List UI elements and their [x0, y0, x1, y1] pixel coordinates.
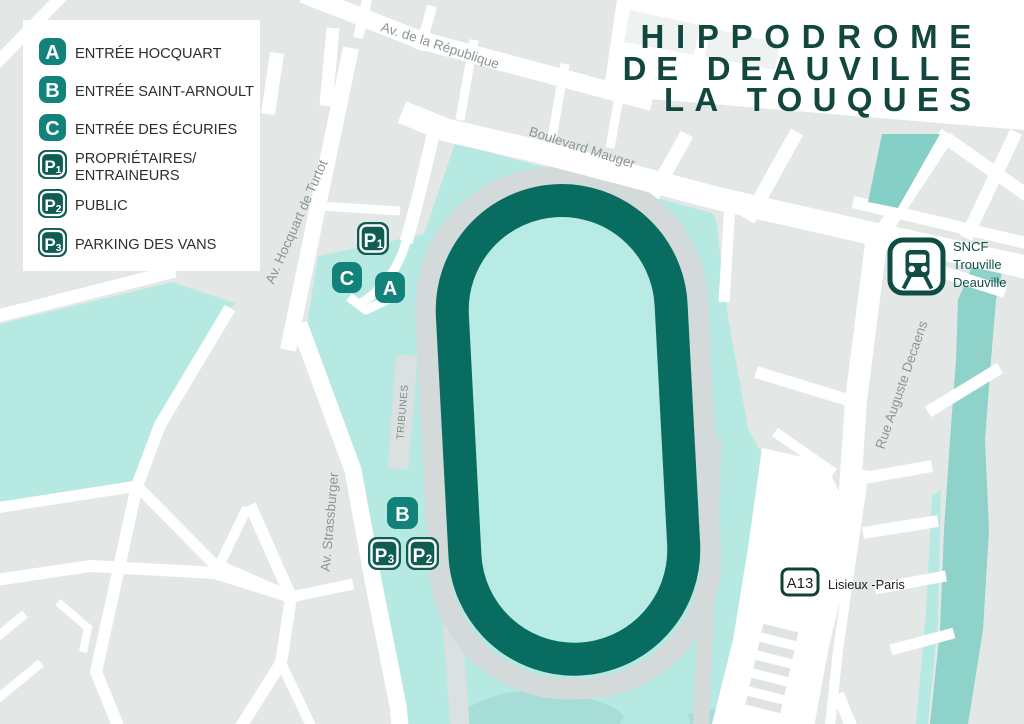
svg-text:1: 1 [377, 239, 384, 251]
svg-text:P: P [44, 157, 55, 176]
svg-text:B: B [45, 80, 59, 102]
svg-text:A13: A13 [787, 575, 814, 592]
svg-text:P: P [364, 231, 377, 252]
svg-text:A: A [45, 42, 59, 64]
svg-text:Trouville: Trouville [953, 257, 1002, 272]
svg-text:C: C [340, 268, 354, 290]
svg-text:ENTRÉE DES ÉCURIES: ENTRÉE DES ÉCURIES [75, 121, 237, 138]
svg-text:ENTRÉE HOCQUART: ENTRÉE HOCQUART [75, 45, 222, 62]
svg-text:PUBLIC: PUBLIC [75, 198, 128, 214]
svg-text:3: 3 [56, 242, 62, 254]
svg-text:B: B [395, 504, 409, 526]
svg-text:Deauville: Deauville [953, 275, 1006, 290]
svg-text:A: A [383, 278, 397, 300]
svg-text:PARKING DES VANS: PARKING DES VANS [75, 237, 217, 253]
svg-text:P: P [44, 196, 55, 215]
svg-text:ENTRÉE SAINT-ARNOULT: ENTRÉE SAINT-ARNOULT [75, 83, 254, 100]
svg-text:PROPRIÉTAIRES/: PROPRIÉTAIRES/ [75, 150, 197, 167]
svg-text:Lisieux -Paris: Lisieux -Paris [828, 577, 905, 592]
svg-text:P: P [413, 546, 426, 567]
svg-text:P: P [44, 235, 55, 254]
svg-text:ENTRAINEURS: ENTRAINEURS [75, 168, 180, 184]
svg-text:2: 2 [56, 203, 62, 215]
svg-text:C: C [45, 118, 59, 140]
svg-text:LA TOUQUES: LA TOUQUES [664, 81, 982, 118]
svg-text:P: P [375, 546, 388, 567]
svg-text:1: 1 [56, 164, 62, 176]
svg-text:3: 3 [388, 554, 394, 566]
svg-text:SNCF: SNCF [953, 239, 988, 254]
svg-text:2: 2 [426, 554, 432, 566]
